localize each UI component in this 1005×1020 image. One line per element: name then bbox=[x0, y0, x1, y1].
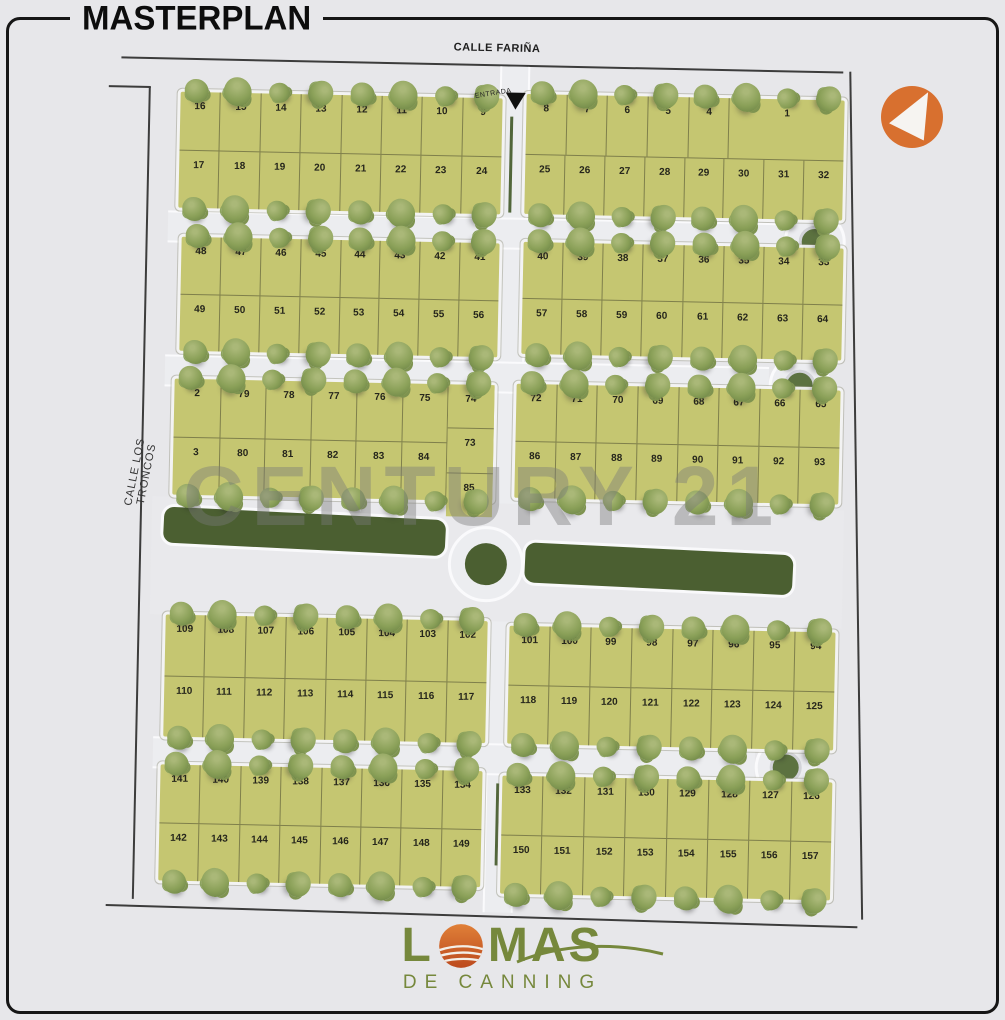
lot-number: 105 bbox=[338, 627, 355, 638]
block-4-left: 1091081071061051041031021101111121131141… bbox=[163, 614, 487, 743]
lot-79: 79 bbox=[221, 380, 267, 438]
lot-number: 112 bbox=[256, 687, 272, 698]
lot-116: 116 bbox=[404, 681, 446, 742]
lot-103: 103 bbox=[406, 620, 448, 681]
lot-number: 155 bbox=[720, 849, 737, 860]
lot-138: 138 bbox=[280, 767, 322, 825]
lot-number: 129 bbox=[679, 788, 696, 799]
lot-50: 50 bbox=[218, 295, 259, 352]
lot-154: 154 bbox=[664, 838, 707, 897]
block-2-left: 48474645444342414950515253545556 bbox=[179, 237, 499, 358]
lot-number: 59 bbox=[616, 309, 627, 320]
lot-46: 46 bbox=[259, 238, 300, 295]
lot-number: 37 bbox=[658, 254, 669, 265]
lot-76: 76 bbox=[356, 382, 403, 440]
block-1-left: 1615141312111091718192021222324 bbox=[178, 92, 502, 215]
lot-60: 60 bbox=[641, 301, 682, 357]
lot-number: 63 bbox=[777, 313, 788, 324]
lot-24: 24 bbox=[460, 156, 502, 214]
lot-157: 157 bbox=[789, 841, 832, 900]
lot-28: 28 bbox=[643, 157, 684, 217]
lot-130: 130 bbox=[624, 778, 667, 837]
lot-37: 37 bbox=[642, 244, 683, 300]
lot-147: 147 bbox=[359, 827, 401, 885]
lot-10: 10 bbox=[421, 97, 463, 155]
lot-42: 42 bbox=[419, 242, 460, 299]
lot-number: 66 bbox=[774, 398, 785, 409]
lot-number: 35 bbox=[738, 255, 749, 266]
lot-number: 67 bbox=[734, 397, 745, 408]
lot-number: 98 bbox=[646, 638, 657, 649]
lot-100: 100 bbox=[548, 627, 590, 686]
lot-number: 70 bbox=[612, 395, 623, 406]
lot-124: 124 bbox=[751, 690, 793, 749]
lot-121: 121 bbox=[629, 688, 671, 747]
lot-number: 102 bbox=[459, 630, 476, 641]
lot-row: 150151152153154155156157 bbox=[500, 834, 831, 900]
lot-number: 22 bbox=[395, 164, 406, 175]
lot-number: 46 bbox=[275, 248, 286, 259]
lot-140: 140 bbox=[199, 765, 241, 823]
lot-122: 122 bbox=[670, 689, 712, 748]
lot-number: 23 bbox=[435, 165, 446, 176]
lot-13: 13 bbox=[300, 94, 342, 152]
lot-row: 133132131130129128127126 bbox=[501, 776, 832, 841]
lot-row: 101100999897969594 bbox=[508, 626, 835, 691]
lot-43: 43 bbox=[379, 241, 420, 298]
lot-6: 6 bbox=[606, 96, 648, 156]
lot-number: 32 bbox=[818, 170, 829, 181]
lot-number: 11 bbox=[397, 105, 408, 116]
lot-58: 58 bbox=[560, 299, 601, 355]
lot-1: 1 bbox=[728, 98, 845, 160]
lot-146: 146 bbox=[319, 826, 361, 884]
lot-111: 111 bbox=[203, 677, 245, 738]
lot-number: 38 bbox=[618, 253, 629, 264]
lot-136: 136 bbox=[360, 769, 402, 827]
lot-93: 93 bbox=[798, 447, 840, 504]
lot-99: 99 bbox=[589, 627, 631, 686]
lot-17: 17 bbox=[178, 150, 219, 208]
lot-102: 102 bbox=[446, 620, 488, 681]
lot-151: 151 bbox=[540, 836, 583, 895]
lot-11: 11 bbox=[380, 96, 422, 154]
lot-number: 76 bbox=[374, 392, 385, 403]
lot-65: 65 bbox=[799, 390, 841, 447]
lot-number: 29 bbox=[698, 167, 709, 178]
lot-number: 1 bbox=[784, 108, 790, 119]
lot-row: 5758596061626364 bbox=[521, 297, 842, 360]
lot-number: 141 bbox=[172, 774, 189, 785]
lot-row: 4039383736353433 bbox=[522, 242, 843, 304]
lot-number: 75 bbox=[419, 393, 430, 404]
lot-number: 99 bbox=[605, 637, 616, 648]
lot-number: 127 bbox=[762, 790, 779, 801]
lot-number: 53 bbox=[353, 307, 364, 318]
century21-arrow-button[interactable] bbox=[881, 86, 943, 148]
lot-number: 24 bbox=[476, 165, 487, 176]
lot-number: 7 bbox=[584, 104, 590, 115]
lot-number: 132 bbox=[555, 786, 572, 797]
logo-wordmark: L MAS bbox=[0, 922, 1005, 970]
lot-number: 128 bbox=[721, 789, 738, 800]
lot-156: 156 bbox=[747, 840, 790, 899]
lot-number: 77 bbox=[329, 391, 340, 402]
lot-123: 123 bbox=[710, 689, 752, 748]
lot-63: 63 bbox=[761, 303, 802, 359]
lot-number: 61 bbox=[697, 311, 708, 322]
logo-subtitle: DE CANNING bbox=[0, 972, 1005, 994]
lot-number: 153 bbox=[637, 847, 654, 858]
lot-57: 57 bbox=[521, 298, 561, 354]
lot-18: 18 bbox=[218, 151, 260, 209]
lot-number: 142 bbox=[170, 832, 187, 843]
lot-78: 78 bbox=[265, 381, 312, 439]
lot-115: 115 bbox=[364, 680, 406, 741]
lot-26: 26 bbox=[563, 155, 604, 215]
lot-40: 40 bbox=[522, 242, 562, 298]
lot-61: 61 bbox=[681, 302, 722, 358]
lot-number: 113 bbox=[297, 688, 313, 699]
lot-number: 94 bbox=[810, 641, 821, 652]
lot-77: 77 bbox=[310, 381, 357, 439]
lot-39: 39 bbox=[562, 243, 603, 299]
lot-number: 48 bbox=[195, 246, 206, 257]
lot-47: 47 bbox=[219, 238, 260, 295]
lot-number: 96 bbox=[728, 639, 739, 650]
lot-142: 142 bbox=[158, 823, 199, 881]
lot-12: 12 bbox=[340, 95, 382, 153]
lot-number: 140 bbox=[212, 775, 229, 786]
corner-line bbox=[109, 85, 151, 88]
lot-30: 30 bbox=[723, 159, 764, 219]
lot-74: 74 bbox=[448, 384, 495, 428]
lot-number: 36 bbox=[698, 255, 709, 266]
lot-number: 33 bbox=[818, 257, 829, 268]
lot-number: 97 bbox=[687, 638, 698, 649]
lot-69: 69 bbox=[636, 386, 678, 443]
lot-number: 109 bbox=[177, 624, 194, 635]
lot-number: 69 bbox=[652, 396, 663, 407]
lot-number: 126 bbox=[804, 791, 821, 802]
lot-number: 54 bbox=[393, 308, 404, 319]
lot-27: 27 bbox=[603, 156, 644, 216]
lot-19: 19 bbox=[258, 152, 300, 210]
lot-104: 104 bbox=[365, 619, 407, 680]
lot-94: 94 bbox=[793, 632, 835, 691]
lot-38: 38 bbox=[602, 244, 643, 300]
lot-row: 142143144145146147148149 bbox=[158, 822, 481, 887]
block-5-left: 1411401391381371361351341421431441451461… bbox=[158, 764, 482, 887]
lot-66: 66 bbox=[758, 389, 800, 446]
lot-53: 53 bbox=[338, 298, 379, 355]
lot-71: 71 bbox=[555, 385, 597, 442]
lot-number: 157 bbox=[802, 850, 819, 861]
lot-number: 104 bbox=[379, 628, 396, 639]
lot-number: 101 bbox=[521, 635, 538, 646]
lot-34: 34 bbox=[762, 247, 803, 303]
development-logo: L MAS DE CANNING bbox=[0, 922, 1005, 994]
block-4-right: 1011009998979695941181191201211221231241… bbox=[507, 626, 835, 751]
lot-number: 15 bbox=[235, 102, 246, 113]
lot-25: 25 bbox=[524, 154, 564, 214]
lot-number: 2 bbox=[195, 388, 201, 399]
lot-75: 75 bbox=[401, 383, 448, 441]
lot-134: 134 bbox=[441, 770, 483, 828]
lot-number: 28 bbox=[659, 166, 670, 177]
lot-number: 114 bbox=[337, 689, 353, 700]
lot-number: 40 bbox=[537, 251, 548, 262]
block-2-right: 40393837363534335758596061626364 bbox=[521, 242, 843, 361]
lot-107: 107 bbox=[244, 616, 286, 677]
lot-number: 21 bbox=[355, 163, 366, 174]
lot-21: 21 bbox=[339, 154, 381, 212]
lot-number: 145 bbox=[292, 835, 309, 846]
lot-number: 131 bbox=[597, 787, 614, 798]
lot-number: 51 bbox=[274, 305, 285, 316]
lot-number: 152 bbox=[595, 846, 612, 857]
lot-number: 65 bbox=[815, 399, 826, 410]
lot-number: 150 bbox=[513, 844, 530, 855]
lot-132: 132 bbox=[542, 776, 585, 835]
lot-number: 125 bbox=[806, 701, 823, 712]
lot-row: 118119120121122123124125 bbox=[507, 684, 834, 750]
lot-23: 23 bbox=[419, 155, 461, 213]
lot-108: 108 bbox=[204, 615, 246, 676]
lot-row: 4950515253545556 bbox=[179, 293, 498, 357]
lot-number: 147 bbox=[372, 836, 389, 847]
lot-67: 67 bbox=[718, 388, 760, 445]
lot-number: 146 bbox=[332, 836, 349, 847]
lot-number: 79 bbox=[238, 389, 249, 400]
lot-8: 8 bbox=[526, 94, 567, 154]
watermark: CENTURY 21 bbox=[183, 448, 781, 545]
lot-row: 2526272829303132 bbox=[524, 153, 843, 220]
lot-15: 15 bbox=[219, 92, 261, 150]
lot-9: 9 bbox=[461, 98, 503, 156]
lot-45: 45 bbox=[299, 239, 340, 296]
lot-number: 118 bbox=[520, 695, 536, 706]
lot-number: 16 bbox=[195, 101, 206, 112]
lot-number: 44 bbox=[355, 249, 366, 260]
lot-145: 145 bbox=[278, 825, 320, 883]
lot-114: 114 bbox=[324, 679, 366, 740]
lot-29: 29 bbox=[683, 158, 724, 218]
lot-number: 52 bbox=[314, 306, 325, 317]
lot-110: 110 bbox=[163, 676, 204, 737]
lot-number: 6 bbox=[625, 105, 631, 116]
lot-number: 10 bbox=[437, 106, 448, 117]
lot-14: 14 bbox=[259, 93, 301, 151]
lot-row: 109108107106105104103102 bbox=[165, 614, 488, 681]
lot-95: 95 bbox=[753, 631, 795, 690]
page-title: MASTERPLAN bbox=[70, 0, 323, 37]
lot-49: 49 bbox=[179, 294, 219, 351]
lot-number: 58 bbox=[576, 309, 587, 320]
lot-number: 25 bbox=[539, 164, 550, 175]
lot-number: 78 bbox=[283, 390, 294, 401]
lot-number: 144 bbox=[251, 834, 268, 845]
lot-number: 122 bbox=[683, 698, 700, 709]
lot-41: 41 bbox=[459, 243, 500, 300]
lot-number: 34 bbox=[778, 256, 789, 267]
lot-20: 20 bbox=[298, 153, 340, 211]
street-label-calle-farina: CALLE FARIÑA bbox=[454, 41, 541, 55]
lot-number: 117 bbox=[458, 691, 474, 702]
lot-number: 115 bbox=[378, 690, 394, 701]
lot-number: 30 bbox=[738, 168, 749, 179]
lot-129: 129 bbox=[666, 779, 709, 838]
lot-112: 112 bbox=[243, 678, 285, 739]
block-5-right: 1331321311301291281271261501511521531541… bbox=[500, 776, 832, 901]
lot-row: 4847464544434241 bbox=[181, 237, 500, 300]
lot-133: 133 bbox=[501, 776, 543, 835]
lot-number: 26 bbox=[579, 165, 590, 176]
lot-149: 149 bbox=[440, 829, 482, 887]
lot-119: 119 bbox=[547, 686, 589, 745]
lot-number: 5 bbox=[665, 106, 671, 117]
lot-number: 149 bbox=[453, 838, 470, 849]
lot-51: 51 bbox=[258, 296, 299, 353]
lot-number: 18 bbox=[234, 160, 245, 171]
lot-68: 68 bbox=[677, 387, 719, 444]
lot-97: 97 bbox=[671, 629, 713, 688]
lot-5: 5 bbox=[646, 96, 688, 156]
lot-118: 118 bbox=[507, 685, 548, 744]
lot-row: 161514131211109 bbox=[180, 92, 503, 156]
lot-141: 141 bbox=[159, 764, 200, 822]
lot-135: 135 bbox=[401, 769, 443, 827]
lot-113: 113 bbox=[283, 678, 325, 739]
north-road-line bbox=[121, 56, 843, 73]
lot-number: 72 bbox=[531, 393, 542, 404]
sun-icon bbox=[438, 923, 484, 969]
logo-letter-l: L bbox=[402, 922, 434, 970]
lot-number: 57 bbox=[536, 308, 547, 319]
lot-143: 143 bbox=[198, 824, 240, 882]
lot-52: 52 bbox=[298, 297, 339, 354]
lot-number: 119 bbox=[561, 695, 577, 706]
lot-98: 98 bbox=[630, 628, 672, 687]
lot-row: 7978777675 bbox=[221, 380, 448, 442]
lot-number: 123 bbox=[724, 699, 741, 710]
lot-36: 36 bbox=[682, 245, 723, 301]
lot-number: 124 bbox=[765, 700, 782, 711]
lot-70: 70 bbox=[596, 385, 638, 442]
lot-106: 106 bbox=[285, 617, 327, 678]
lot-127: 127 bbox=[748, 781, 791, 840]
down-triangle-icon bbox=[505, 92, 525, 109]
lot-number: 45 bbox=[315, 249, 326, 260]
lot-number: 151 bbox=[554, 845, 571, 856]
lot-number: 106 bbox=[298, 626, 315, 637]
lot-148: 148 bbox=[399, 828, 441, 886]
lot-101: 101 bbox=[508, 626, 549, 685]
lot-number: 111 bbox=[216, 686, 232, 697]
lot-125: 125 bbox=[792, 691, 834, 750]
lot-44: 44 bbox=[339, 240, 380, 297]
lot-59: 59 bbox=[601, 300, 642, 356]
lot-number: 116 bbox=[418, 690, 434, 701]
lot-120: 120 bbox=[588, 687, 630, 746]
lot-number: 139 bbox=[252, 775, 269, 786]
lot-row: 876541 bbox=[526, 94, 845, 160]
lot-number: 42 bbox=[434, 251, 445, 262]
lot-number: 62 bbox=[737, 312, 748, 323]
lot-number: 107 bbox=[258, 626, 275, 637]
lot-number: 74 bbox=[466, 394, 477, 405]
lot-150: 150 bbox=[500, 835, 542, 894]
lot-33: 33 bbox=[802, 248, 843, 304]
lot-96: 96 bbox=[712, 630, 754, 689]
lot-number: 154 bbox=[678, 848, 695, 859]
lot-35: 35 bbox=[722, 246, 763, 302]
left-triangle-icon bbox=[881, 86, 943, 148]
lot-number: 95 bbox=[769, 640, 780, 651]
lot-number: 60 bbox=[656, 310, 667, 321]
lot-2: 2 bbox=[174, 379, 221, 437]
lot-number: 136 bbox=[373, 778, 390, 789]
lot-62: 62 bbox=[721, 303, 762, 359]
block-1-right: 8765412526272829303132 bbox=[524, 94, 844, 221]
lot-137: 137 bbox=[320, 768, 362, 826]
lot-number: 17 bbox=[193, 160, 204, 171]
lot-number: 13 bbox=[316, 104, 327, 115]
lot-153: 153 bbox=[623, 838, 666, 897]
lot-152: 152 bbox=[582, 837, 625, 896]
lot-number: 12 bbox=[356, 104, 367, 115]
lot-number: 121 bbox=[642, 697, 659, 708]
lot-number: 135 bbox=[414, 779, 431, 790]
lot-72: 72 bbox=[515, 384, 556, 441]
lot-number: 55 bbox=[433, 309, 444, 320]
lot-number: 20 bbox=[314, 162, 325, 173]
lot-16: 16 bbox=[180, 92, 221, 150]
lot-number: 110 bbox=[176, 685, 192, 696]
lot-number: 148 bbox=[413, 837, 430, 848]
lot-155: 155 bbox=[706, 839, 749, 898]
lot-number: 43 bbox=[395, 250, 406, 261]
lot-139: 139 bbox=[239, 766, 281, 824]
lot-number: 100 bbox=[562, 636, 579, 647]
lot-number: 130 bbox=[638, 788, 655, 799]
lot-number: 71 bbox=[571, 394, 582, 405]
lot-number: 49 bbox=[194, 304, 205, 315]
lot-row: 7271706968676665 bbox=[515, 384, 840, 447]
lot-128: 128 bbox=[707, 780, 750, 839]
lot-22: 22 bbox=[379, 154, 421, 212]
logo-swoosh-icon bbox=[515, 940, 665, 966]
lot-number: 50 bbox=[234, 304, 245, 315]
lot-number: 4 bbox=[706, 107, 712, 118]
lot-number: 103 bbox=[419, 629, 436, 640]
lot-56: 56 bbox=[457, 300, 498, 357]
lot-number: 134 bbox=[454, 780, 471, 791]
lot-64: 64 bbox=[801, 304, 842, 360]
lot-number: 120 bbox=[601, 696, 618, 707]
lot-109: 109 bbox=[165, 614, 206, 675]
lot-number: 47 bbox=[235, 247, 246, 258]
lot-7: 7 bbox=[565, 95, 607, 155]
lot-number: 68 bbox=[693, 397, 704, 408]
lot-row: 110111112113114115116117 bbox=[163, 675, 486, 743]
lot-144: 144 bbox=[238, 825, 280, 883]
lot-131: 131 bbox=[583, 777, 626, 836]
lot-4: 4 bbox=[687, 97, 729, 157]
lot-number: 137 bbox=[333, 777, 350, 788]
lot-31: 31 bbox=[762, 159, 803, 219]
lot-32: 32 bbox=[802, 160, 843, 220]
